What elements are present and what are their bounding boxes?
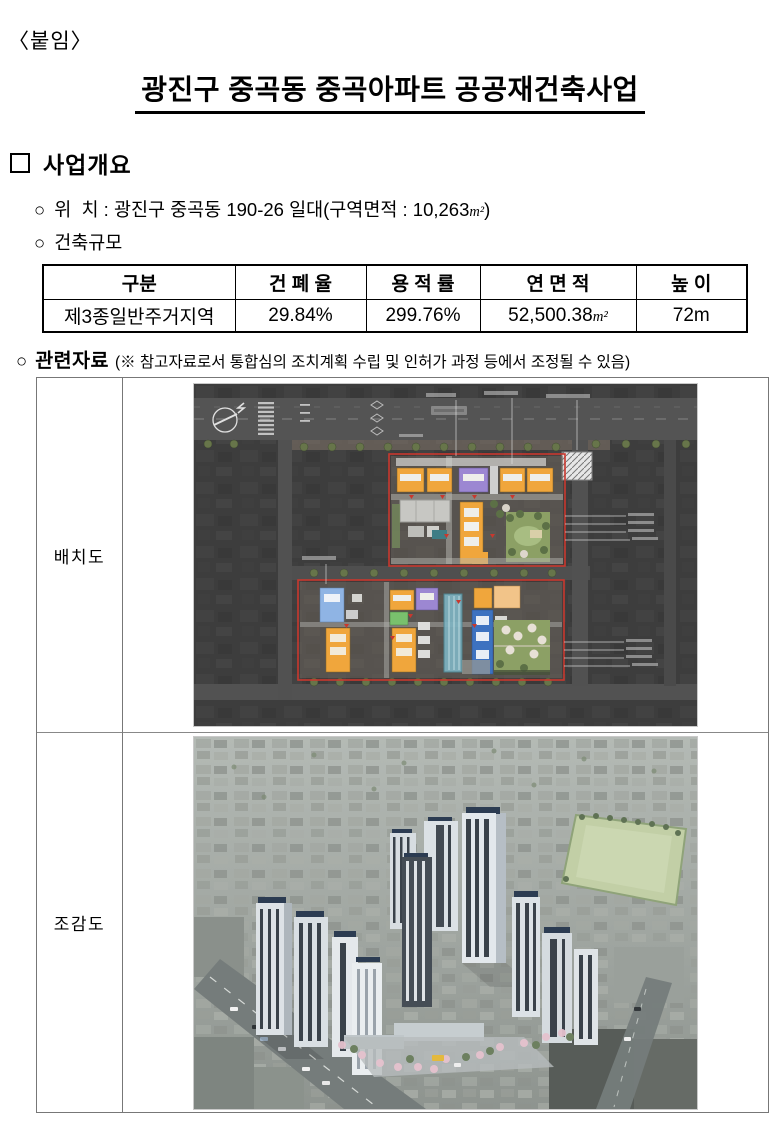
area-unit: m² [593,309,608,325]
tower-left-1 [256,897,292,1035]
col-header-coverage: 건 폐 율 [235,265,366,300]
related-note: (※ 참고자료로서 통합심의 조치계획 수립 및 인허가 과정 등에서 조정될 … [115,350,630,372]
circle-bullet-icon: ○ [34,232,45,254]
cell-coverage: 29.84% [235,300,366,333]
lower-block-buildings [300,582,562,678]
area-unit: m² [469,204,484,221]
tower-tallest [462,807,506,963]
related-heading: 관련자료 [35,344,109,373]
building-scale-table: 구분 건 폐 율 용 적 률 연 면 적 높 이 제3종일반주거지역 29.84… [42,264,748,333]
col-header-gfa: 연 면 적 [480,265,636,300]
upper-block-buildings [391,456,563,564]
col-header-far: 용 적 률 [366,265,480,300]
circle-bullet-icon: ○ [34,199,45,221]
location-line: ○ 위 치 : 광진구 중곡동 190-26 일대(구역면적 : 10,263m… [34,196,490,222]
tower-mid-dark [402,853,432,1007]
title-row: 광진구 중곡동 중곡아파트 공공재건축사업 [0,68,780,114]
figure-cell-birdseye [123,733,768,1112]
birdseye-rendering-image [193,736,698,1110]
scale-heading: 건축규모 [54,229,122,255]
attachment-label: 〈붙임〉 [8,25,93,55]
tower-right-3 [574,949,598,1045]
figure-label-siteplan: 배치도 [37,378,123,733]
col-header-height: 높 이 [636,265,747,300]
cell-gfa: 52,500.38m² [480,300,636,333]
figure-table: 배치도 [36,377,769,1113]
tower-right-2 [542,927,572,1043]
page-title: 광진구 중곡동 중곡아파트 공공재건축사업 [135,68,645,114]
figure-label-birdseye: 조감도 [37,733,123,1112]
square-bullet-icon [10,153,30,173]
location-value-close: ) [484,199,490,221]
hatched-reserve-area [562,452,592,480]
tower-left-2 [294,911,328,1047]
overview-heading: 사업개요 [43,146,132,180]
figure-cell-siteplan [123,378,768,733]
section-heading-overview: 사업개요 [10,146,132,180]
table-row: 제3종일반주거지역 29.84% 299.76% 52,500.38m² 72m [43,300,747,333]
shuttle-bus [432,1055,444,1061]
cell-zone: 제3종일반주거지역 [43,300,235,333]
location-label: 위 치 : [54,196,114,222]
table-header-row: 구분 건 폐 율 용 적 률 연 면 적 높 이 [43,265,747,300]
location-value: 광진구 중곡동 190-26 일대(구역면적 : 10,263 [114,196,469,222]
circle-bullet-icon: ○ [16,350,27,372]
document-page: 〈붙임〉 광진구 중곡동 중곡아파트 공공재건축사업 사업개요 ○ 위 치 : … [0,0,780,1129]
tower-right-1 [512,891,540,1017]
col-header-category: 구분 [43,265,235,300]
scale-heading-line: ○ 건축규모 [34,229,122,255]
related-data-line: ○ 관련자료 (※ 참고자료로서 통합심의 조치계획 수립 및 인허가 과정 등… [16,344,630,373]
cell-height: 72m [636,300,747,333]
street-name-tag [431,406,467,415]
cell-far: 299.76% [366,300,480,333]
site-plan-image [193,383,698,727]
